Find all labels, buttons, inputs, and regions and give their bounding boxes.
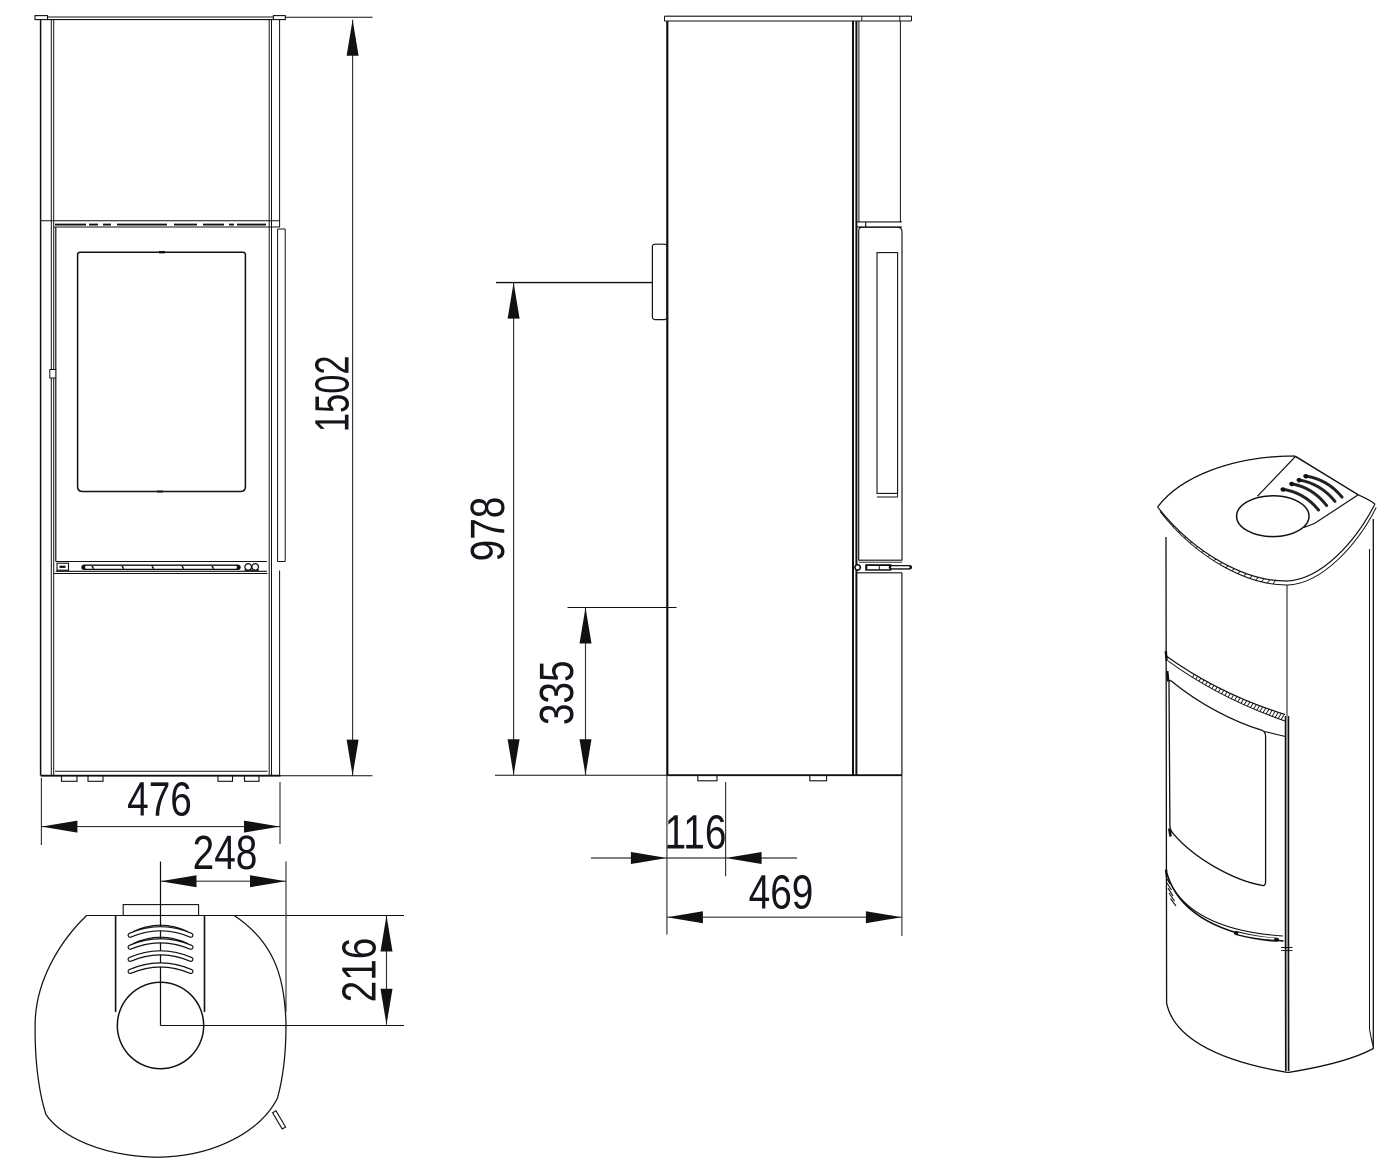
svg-text:1502: 1502 (304, 356, 358, 433)
svg-text:335: 335 (530, 660, 584, 725)
svg-text:978: 978 (461, 497, 515, 562)
svg-text:248: 248 (193, 826, 258, 880)
svg-text:216: 216 (332, 938, 386, 1003)
svg-text:469: 469 (749, 865, 814, 919)
svg-text:116: 116 (665, 805, 727, 859)
svg-text:476: 476 (127, 772, 192, 826)
